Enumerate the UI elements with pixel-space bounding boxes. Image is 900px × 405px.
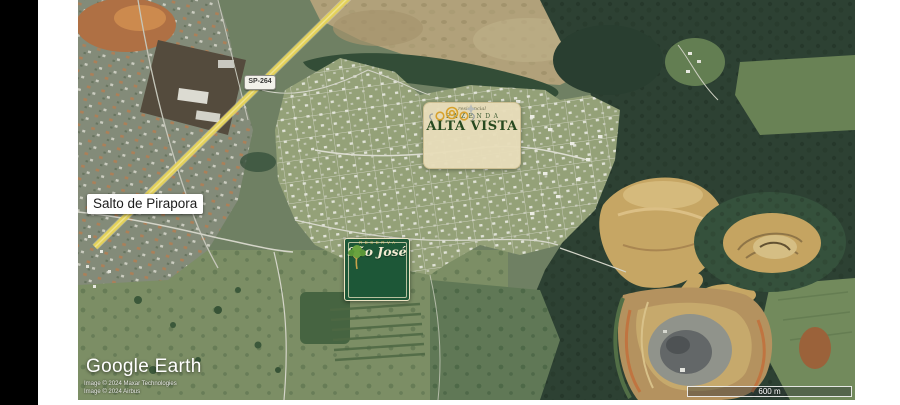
- alta-vista-logo: residencial FAZENDA ALTA VISTA: [423, 102, 521, 169]
- place-label: Salto de Pirapora: [87, 194, 203, 214]
- satellite-map-viewport[interactable]: Salto de Pirapora SP-264 residencial FAZ…: [78, 0, 855, 400]
- scale-bar: 600 m: [687, 386, 852, 397]
- sao-jose-logo: RESERVA São José: [344, 238, 410, 301]
- alta-vista-swirl-icon: [424, 103, 480, 127]
- sao-jose-tree-icon: [345, 243, 369, 270]
- google-earth-watermark: Google Earth: [86, 356, 202, 378]
- attribution-line-1: Image © 2024 Maxar Technologies: [84, 381, 177, 389]
- road-shield-sp264: SP-264: [244, 75, 276, 90]
- letterbox-left-bar: [0, 0, 38, 405]
- imagery-attribution: Image © 2024 Maxar Technologies Image © …: [84, 381, 177, 396]
- attribution-line-2: Image © 2024 Airbus: [84, 389, 177, 397]
